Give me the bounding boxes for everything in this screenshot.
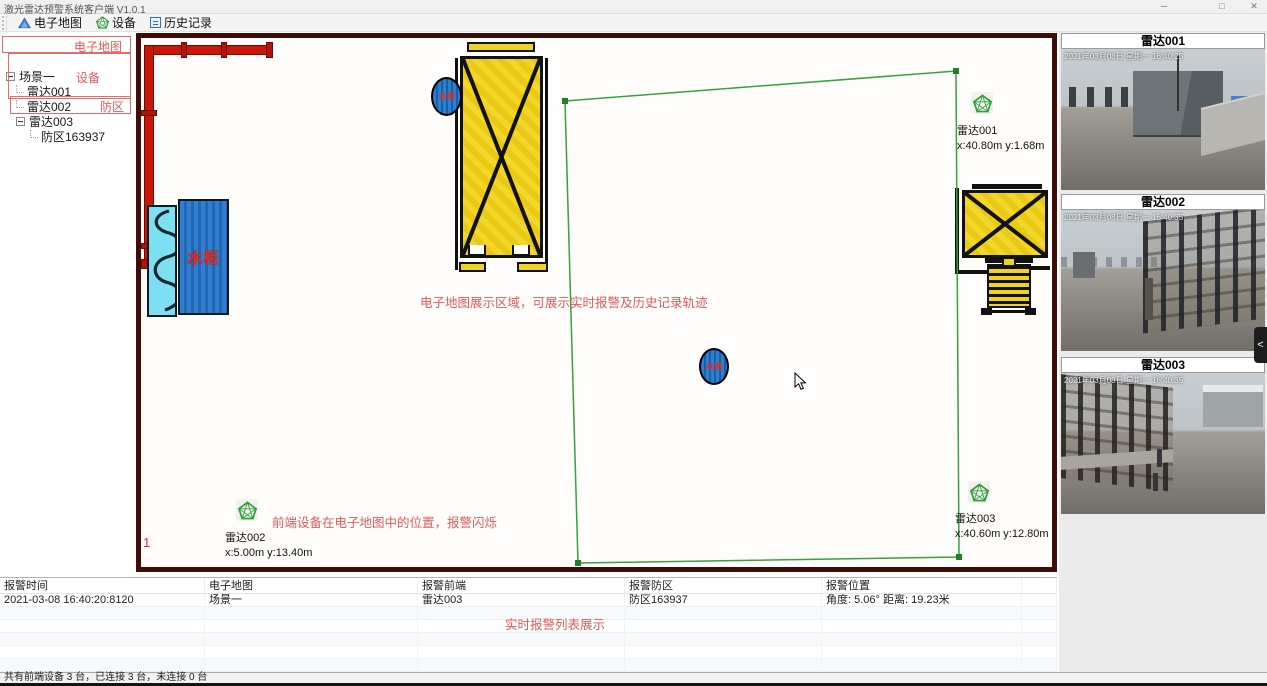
camera-block-radar001[interactable]: 雷达001 2021年03月08日 星期一 16:40:25 (1061, 33, 1265, 190)
rooftop-cabinet (1073, 252, 1095, 278)
tree-item-scene[interactable]: 场景一 (6, 69, 55, 84)
col-zone: 报警防区 (625, 578, 822, 593)
radar002-marker[interactable] (236, 499, 258, 521)
camera-timestamp: 2021年03月08日 星期一 16:40:25 (1064, 51, 1183, 62)
camera-timestamp: 2021年03月08日 星期一 16:40:35 (1064, 375, 1183, 386)
radar-coords: x:40.80m y:1.68m (957, 139, 1044, 154)
alarm-row-empty[interactable] (0, 633, 1057, 646)
toolbar-item-history[interactable]: 历史记录 (143, 14, 219, 32)
radar-name: 雷达003 (955, 512, 1049, 527)
mouse-cursor-icon (794, 372, 807, 391)
map-icon (18, 17, 31, 29)
tree-item-zone[interactable]: 防区163937 (30, 129, 105, 144)
toolbar-grip[interactable] (2, 16, 7, 30)
radar003-label: 雷达003 x:40.60m y:12.80m (955, 512, 1049, 542)
alarm-table-annotation: 实时报警列表展示 (505, 614, 605, 633)
radar-pentagon-icon (973, 94, 992, 113)
cell-map: 场景一 (205, 594, 418, 606)
camera-title: 雷达003 (1061, 357, 1265, 373)
annotation-label-zone: 防区 (100, 98, 124, 115)
tree-item-radar003[interactable]: 雷达003 (16, 114, 73, 129)
radar-name: 雷达001 (957, 124, 1044, 139)
col-alarm-time: 报警时间 (0, 578, 205, 593)
annotation-index-1: 1 (143, 535, 150, 550)
annotation-label-device: 设备 (76, 69, 100, 86)
tree-item-radar002[interactable]: 雷达002 (16, 99, 71, 114)
radar-name: 雷达002 (225, 531, 312, 546)
radar002-label: 雷达002 x:5.00m y:13.40m (225, 531, 312, 561)
rooftop-antenna (1177, 55, 1179, 111)
camera-image-radar002[interactable]: 2021年03月08日 星期一 16:40:35 (1061, 210, 1265, 351)
collapse-expander-icon[interactable] (6, 72, 15, 81)
device-pentagon-icon (96, 16, 109, 29)
alarm-row-empty[interactable] (0, 659, 1057, 672)
ladder-knob (1002, 257, 1016, 267)
device-tree-panel: 场景一 雷达001 雷达002 雷达003 防区163937 电子地图 设备 防… (0, 32, 134, 577)
rooftop-structure (1203, 385, 1263, 427)
camera-preview-panel: 雷达001 2021年03月08日 星期一 16:40:25 雷达002 202… (1059, 32, 1267, 672)
map-panel: 水柜 水塔 水塔 (136, 33, 1057, 572)
camera-block-radar002[interactable]: 雷达002 2021年03月08日 星期一 16:40:35 (1061, 194, 1265, 351)
alarm-table-header: 报警时间 电子地图 报警前端 报警防区 报警位置 (0, 578, 1057, 594)
maximize-button[interactable]: □ (1208, 0, 1236, 13)
rooftop-post (1121, 87, 1128, 107)
minimize-button[interactable]: ─ (1150, 0, 1178, 13)
cell-alarm-time: 2021-03-08 16:40:20:8120 (0, 594, 205, 606)
cell-position: 角度: 5.06° 距离: 19.23米 (822, 594, 1022, 606)
camera-title: 雷达001 (1061, 33, 1265, 49)
history-icon (150, 17, 161, 28)
close-button[interactable]: ✕ (1240, 0, 1267, 13)
camera-image-radar001[interactable]: 2021年03月08日 星期一 16:40:25 (1061, 49, 1265, 190)
camera-title: 雷达002 (1061, 194, 1265, 210)
map-canvas[interactable]: 水柜 水塔 水塔 (141, 38, 1052, 567)
col-map: 电子地图 (205, 578, 418, 593)
map-annotation-area: 电子地图展示区域，可展示实时报警及历史记录轨迹 (420, 292, 708, 311)
rooftop-post (1069, 87, 1076, 107)
alarm-row[interactable]: 2021-03-08 16:40:20:8120 场景一 雷达003 防区163… (0, 594, 1057, 607)
radar001-label: 雷达001 x:40.80m y:1.68m (957, 124, 1044, 154)
radar001-marker[interactable] (971, 92, 993, 114)
col-front-device: 报警前端 (418, 578, 625, 593)
status-bar: 共有前端设备 3 台，已连接 3 台，未连接 0 台 (0, 672, 1267, 683)
toolbar: 电子地图 设备 历史记录 (0, 14, 1267, 32)
col-position: 报警位置 (822, 578, 1022, 593)
radar-pentagon-icon (238, 501, 257, 520)
app-window: 激光雷达预警系统客户端 V1.0.1 ─ □ ✕ 电子地图 设备 历史记录 场景… (0, 0, 1267, 686)
rooftop-post (1105, 87, 1112, 107)
tree-label-zone: 防区163937 (41, 128, 105, 145)
tree-connector (16, 100, 24, 108)
alarm-row-empty[interactable] (0, 646, 1057, 659)
tree-connector (16, 85, 24, 93)
toolbar-label-device: 设备 (112, 14, 136, 31)
camera-image-radar003[interactable]: 2021年03月08日 星期一 16:40:35 (1061, 373, 1265, 514)
camera-timestamp: 2021年03月08日 星期一 16:40:35 (1064, 212, 1183, 223)
tree-connector (30, 130, 38, 138)
panel-collapse-chevron[interactable]: < (1254, 327, 1267, 363)
radar-coords: x:5.00m y:13.40m (225, 546, 312, 561)
tree-item-radar001[interactable]: 雷达001 (16, 84, 71, 99)
camera-block-radar003[interactable]: 雷达003 2021年03月08日 星期一 16:40:35 (1061, 357, 1265, 514)
cell-front-device: 雷达003 (418, 594, 625, 606)
collapse-expander-icon[interactable] (16, 117, 25, 126)
cell-zone: 防区163937 (625, 594, 822, 606)
radar003-marker[interactable] (968, 481, 990, 503)
toolbar-item-device[interactable]: 设备 (89, 14, 143, 32)
toolbar-item-map[interactable]: 电子地图 (11, 14, 89, 32)
toolbar-label-map: 电子地图 (34, 14, 82, 31)
rooftop-post (1087, 87, 1094, 107)
toolbar-label-history: 历史记录 (164, 14, 212, 31)
rooftop-post (1157, 449, 1162, 467)
rooftop-post (1153, 473, 1158, 491)
scaffolding (1143, 210, 1265, 333)
annotation-label-map: 电子地图 (74, 38, 122, 55)
radar-pentagon-icon (970, 483, 989, 502)
map-annotation-devices: 前端设备在电子地图中的位置，报警闪烁 (272, 512, 497, 531)
title-bar: 激光雷达预警系统客户端 V1.0.1 ─ □ ✕ (0, 0, 1267, 14)
rooftop-post (1145, 278, 1153, 320)
radar-coords: x:40.60m y:12.80m (955, 527, 1049, 542)
